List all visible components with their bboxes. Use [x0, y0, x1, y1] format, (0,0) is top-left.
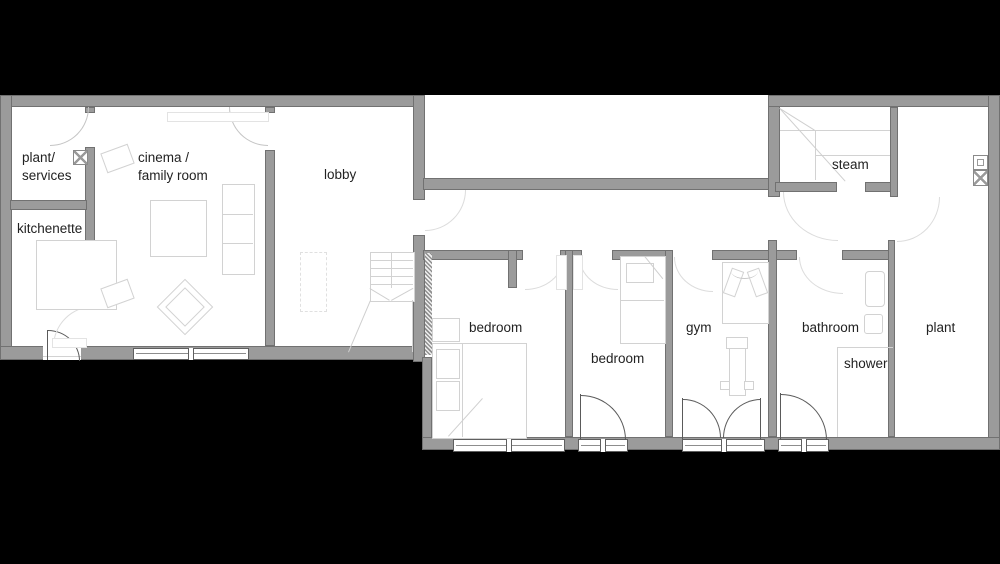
room-label-bathroom: bathroom — [802, 319, 859, 337]
bench-line — [780, 130, 890, 131]
window-icon — [682, 439, 765, 452]
wall — [768, 240, 777, 437]
coffee-table-icon — [150, 200, 207, 257]
room-label-plant: plant — [926, 319, 955, 337]
wall — [768, 95, 1000, 107]
door-opening — [837, 182, 865, 192]
wall — [423, 178, 778, 190]
bedside-table-icon — [432, 318, 460, 342]
wall — [888, 240, 895, 437]
room-label-shower: shower — [844, 355, 888, 373]
shelf-icon — [167, 112, 269, 122]
wall — [10, 200, 87, 210]
sump-icon — [973, 155, 988, 170]
wall — [988, 95, 1000, 450]
door-jamb — [573, 255, 583, 290]
window-icon — [453, 439, 565, 452]
treadmill-console — [726, 337, 748, 349]
basin-icon — [865, 271, 885, 307]
wall — [712, 250, 797, 260]
wall — [890, 107, 898, 197]
door-opening — [890, 197, 897, 240]
bed-line — [620, 300, 664, 301]
room-label-lobby: lobby — [324, 166, 356, 184]
wall — [665, 250, 673, 437]
wall — [775, 182, 837, 192]
wall — [265, 150, 275, 346]
window-icon — [578, 439, 628, 452]
room-label-gym: gym — [686, 319, 712, 337]
shower-screen — [837, 347, 893, 348]
sofa-cushion-line — [222, 214, 253, 215]
bed-line — [462, 343, 463, 437]
stair-headroom-line — [300, 252, 327, 312]
room-label-bedroom-2: bedroom — [591, 350, 644, 368]
wall — [0, 95, 425, 107]
room-label-steam: steam — [832, 156, 869, 174]
hatched-wall — [425, 253, 432, 355]
pillow-icon — [436, 349, 460, 379]
treadmill-foot — [720, 381, 730, 390]
room-label-kitchenette: kitchenette — [17, 220, 82, 238]
sofa-icon — [222, 184, 255, 275]
shower-screen — [837, 347, 838, 437]
room-label-cinema: cinema / family room — [138, 149, 208, 185]
pillow-icon — [436, 381, 460, 411]
toilet-icon — [864, 314, 883, 334]
room-label-plant-services: plant/ services — [22, 149, 72, 185]
barbell-icon — [731, 263, 758, 279]
sofa-cushion-line — [222, 243, 253, 244]
floor-drain-icon — [73, 150, 88, 165]
door-opening — [413, 200, 425, 235]
door-jamb — [556, 255, 567, 290]
floor-lightwell-void — [425, 95, 768, 190]
window-icon — [778, 439, 829, 452]
stair-edge — [412, 300, 413, 352]
floor-drain-icon — [973, 170, 988, 186]
floor-plan: plant/ services cinema / family room kit… — [0, 0, 1000, 564]
stair-centerline — [391, 252, 392, 288]
wall — [0, 95, 12, 360]
room-label-bedroom-1: bedroom — [469, 319, 522, 337]
window-icon — [133, 348, 249, 360]
pillow-icon — [626, 263, 654, 283]
treadmill-foot — [744, 381, 754, 390]
door-mat — [52, 338, 87, 348]
wall — [508, 250, 517, 288]
